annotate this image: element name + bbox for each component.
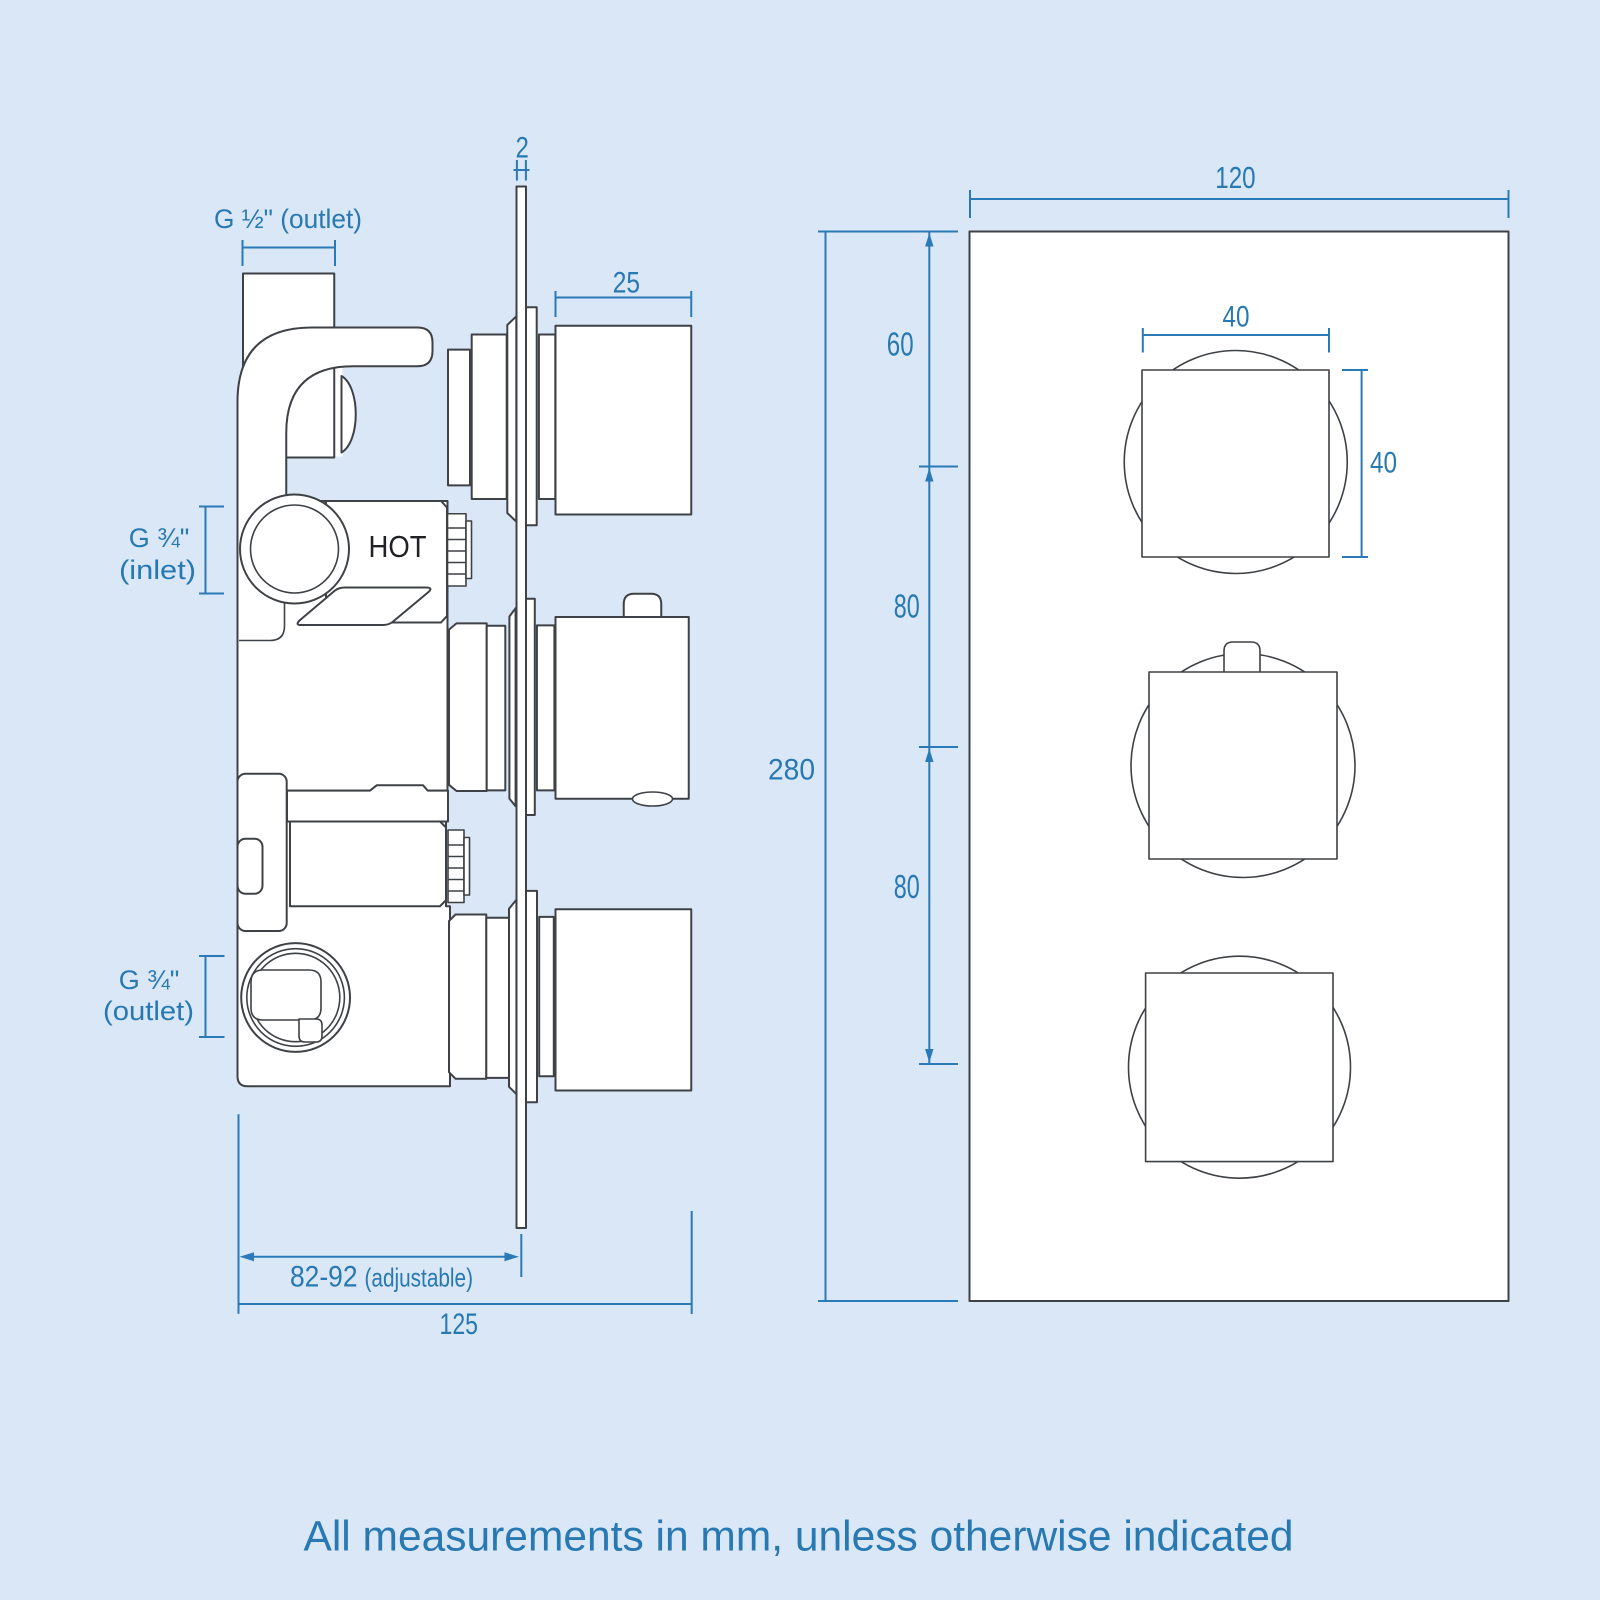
svg-text:280: 280 xyxy=(768,754,815,787)
svg-text:G ¾": G ¾" xyxy=(119,965,180,995)
svg-text:(outlet): (outlet) xyxy=(103,996,194,1026)
svg-text:82-92: 82-92 xyxy=(290,1261,358,1294)
svg-text:80: 80 xyxy=(894,868,920,905)
svg-text:125: 125 xyxy=(440,1308,479,1341)
svg-text:(adjustable): (adjustable) xyxy=(365,1263,474,1293)
svg-text:40: 40 xyxy=(1223,301,1250,334)
svg-text:2: 2 xyxy=(516,132,529,165)
svg-text:60: 60 xyxy=(887,326,914,363)
svg-text:G ¾": G ¾" xyxy=(129,523,190,553)
svg-text:(inlet): (inlet) xyxy=(119,555,196,585)
svg-text:G ½" (outlet): G ½" (outlet) xyxy=(214,204,362,234)
svg-text:25: 25 xyxy=(613,266,640,299)
svg-text:120: 120 xyxy=(1215,160,1255,195)
svg-text:80: 80 xyxy=(894,588,920,625)
svg-text:40: 40 xyxy=(1370,447,1397,480)
svg-text:HOT: HOT xyxy=(369,529,427,564)
svg-text:All measurements in mm, unless: All measurements in mm, unless otherwise… xyxy=(304,1513,1294,1561)
